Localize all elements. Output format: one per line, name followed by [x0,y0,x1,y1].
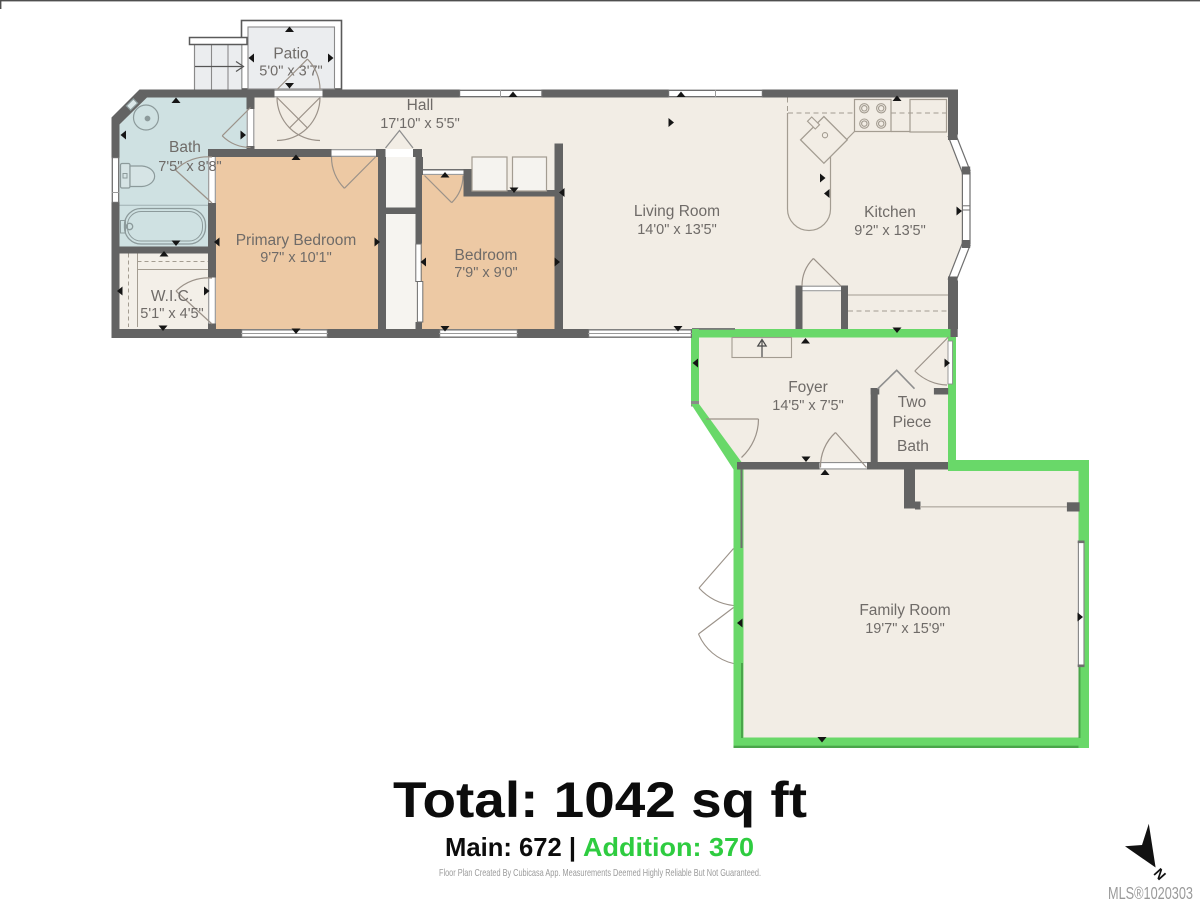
svg-text:Addition: 370: Addition: 370 [583,832,754,862]
svg-text:Bedroom: Bedroom [455,247,518,264]
svg-text:Floor Plan Created By Cubicasa: Floor Plan Created By Cubicasa App. Meas… [439,867,761,879]
svg-text:Bath: Bath [897,438,929,455]
svg-text:9'7" x 10'1": 9'7" x 10'1" [260,250,331,266]
svg-text:Kitchen: Kitchen [864,204,916,221]
svg-text:Primary Bedroom: Primary Bedroom [236,232,357,249]
svg-text:Living Room: Living Room [634,203,720,220]
svg-text:Patio: Patio [273,46,308,63]
svg-text:7'5" x 8'8": 7'5" x 8'8" [158,159,221,175]
svg-text:Family Room: Family Room [859,602,950,619]
svg-text:19'7" x 15'9": 19'7" x 15'9" [865,621,945,637]
svg-text:Piece: Piece [893,414,932,431]
svg-text:5'1" x 4'5": 5'1" x 4'5" [140,306,203,322]
svg-text:Bath: Bath [169,139,201,156]
svg-text:Foyer: Foyer [788,379,828,396]
svg-text:9'2" x 13'5": 9'2" x 13'5" [854,223,925,239]
svg-text:Hall: Hall [407,97,434,114]
svg-text:Total: 1042 sq ft: Total: 1042 sq ft [393,772,807,828]
svg-text:W.I.C.: W.I.C. [151,288,193,305]
svg-text:14'5" x 7'5": 14'5" x 7'5" [772,398,843,414]
svg-text:14'0" x 13'5": 14'0" x 13'5" [637,222,717,238]
svg-text:7'9" x 9'0": 7'9" x 9'0" [454,265,517,281]
svg-text:Main: 672 |: Main: 672 | [445,832,576,862]
svg-text:17'10" x 5'5": 17'10" x 5'5" [380,116,460,132]
svg-text:MLS®1020303: MLS®1020303 [1108,883,1193,900]
svg-text:Two: Two [898,394,926,411]
